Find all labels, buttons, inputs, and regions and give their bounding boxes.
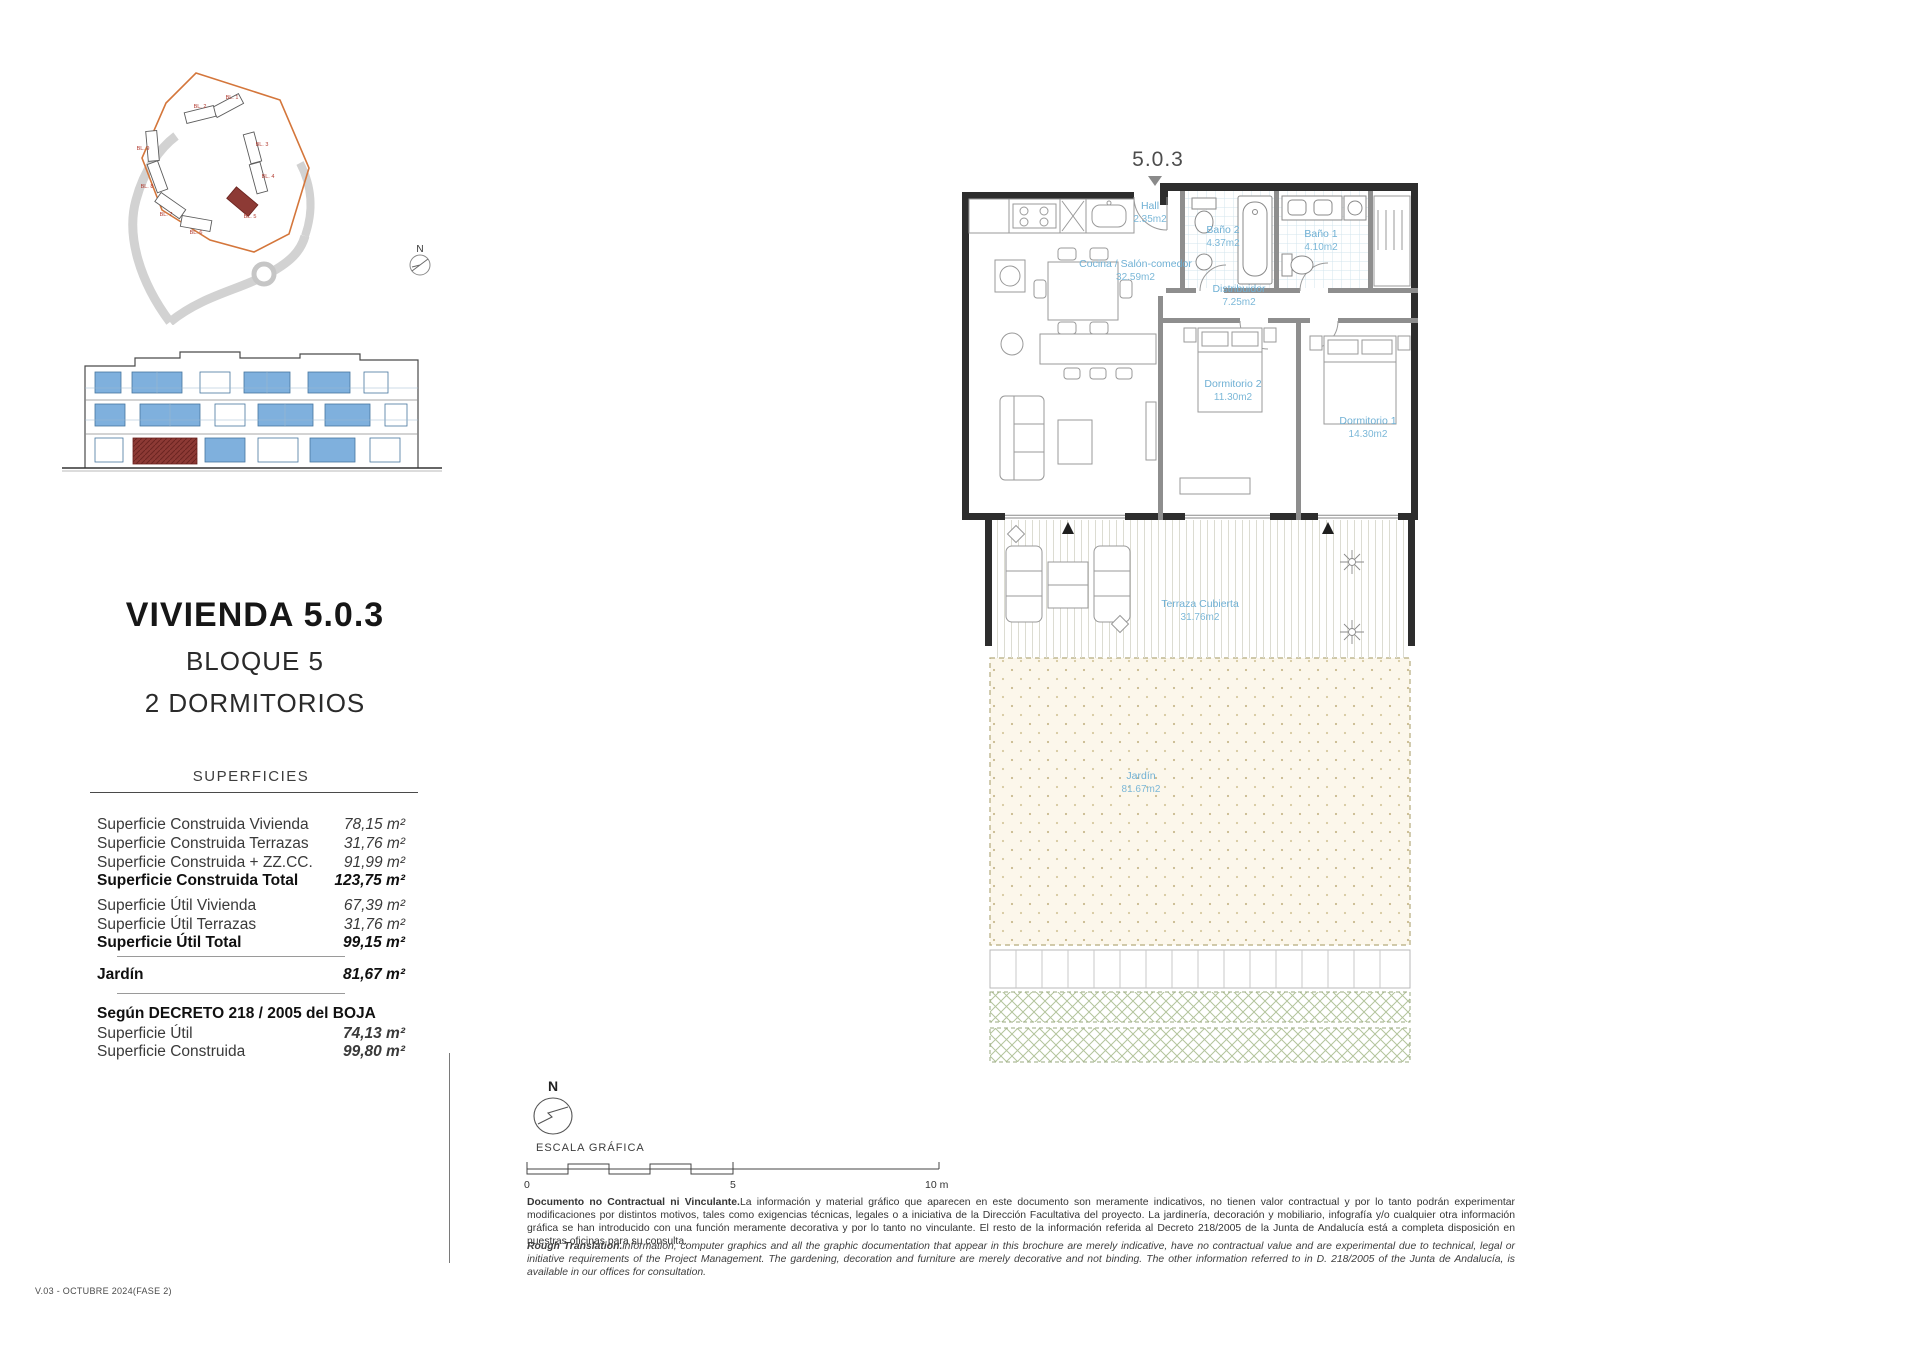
site-roads <box>133 136 311 322</box>
svg-text:BL. 9: BL. 9 <box>137 146 150 152</box>
room-label-jardin: Jardín81.67m2 <box>1096 770 1186 796</box>
surfaces-underline <box>90 792 418 793</box>
highlighted-unit <box>133 438 197 464</box>
svg-text:BL. 2: BL. 2 <box>194 104 207 110</box>
table-row: Superficie Construida + ZZ.CC.91,99 m² <box>97 854 405 872</box>
table-row: Superficie Útil74,13 m² <box>97 1025 405 1043</box>
table-row: Superficie Útil Vivienda67,39 m² <box>97 897 405 915</box>
surfaces-heading: SUPERFICIES <box>90 768 412 785</box>
scale-and-compass: N 0 5 10 m <box>520 1075 960 1190</box>
pavers-band <box>990 950 1410 988</box>
brochure-page: BL. 1 BL. 2 BL. 3 BL. 4 BL. 5 BL. 6 BL. … <box>0 0 1920 1357</box>
sofa-icon <box>1000 396 1044 480</box>
building-elevation <box>55 340 450 480</box>
svg-text:10 m: 10 m <box>925 1179 949 1190</box>
stove-icon <box>1013 204 1056 228</box>
table-row: Superficie Útil Terrazas31,76 m² <box>97 916 405 934</box>
room-label-dormitorio2: Dormitorio 211.30m2 <box>1188 378 1278 404</box>
svg-text:BL. 1: BL. 1 <box>226 95 239 101</box>
coffee-table-icon <box>1058 420 1092 464</box>
room-label-distribuidor: Distribuidor7.25m2 <box>1196 283 1282 309</box>
site-plan: BL. 1 BL. 2 BL. 3 BL. 4 BL. 5 BL. 6 BL. … <box>100 55 440 325</box>
windows <box>1005 513 1398 520</box>
toilet-icon <box>1282 254 1313 276</box>
divider <box>117 993 345 994</box>
dresser-icon <box>1180 478 1250 494</box>
footer-divider <box>449 1053 450 1263</box>
svg-text:BL. 7: BL. 7 <box>160 212 173 218</box>
room-label-terraza: Terraza Cubierta31.76m2 <box>1140 598 1260 624</box>
svg-text:BL. 6: BL. 6 <box>190 230 203 236</box>
table-row-total: Superficie Construida Total123,75 m² <box>97 872 405 890</box>
terrace-area <box>985 520 1415 658</box>
version-label: V.03 - OCTUBRE 2024(FASE 2) <box>35 1286 172 1296</box>
escala-grafica-label: ESCALA GRÁFICA <box>536 1142 645 1154</box>
subtitle-block: BLOQUE 5 <box>70 646 440 677</box>
bedroom2-furniture <box>1180 328 1276 494</box>
armchair-icon <box>1001 333 1023 355</box>
svg-text:0: 0 <box>524 1179 530 1190</box>
svg-text:5: 5 <box>730 1179 736 1190</box>
room-label-dormitorio1: Dormitorio 114.30m2 <box>1325 415 1411 441</box>
table-row-total: Superficie Útil Total99,15 m² <box>97 934 405 952</box>
wardrobe-icon <box>1374 196 1410 286</box>
washbasin-icon <box>1314 200 1332 215</box>
plan-number-marker <box>1148 176 1162 186</box>
highlighted-block <box>227 187 258 216</box>
scale-tick-labels: 0 5 10 m <box>524 1179 949 1190</box>
decreto-heading: Según DECRETO 218 / 2005 del BOJA <box>97 1005 405 1023</box>
scale-bar <box>527 1162 939 1174</box>
hedge-bands <box>990 992 1410 1062</box>
washing-machine-icon <box>1344 196 1366 220</box>
svg-text:BL. 3: BL. 3 <box>256 142 269 148</box>
room-label-cocina: Cocina / Salón-comedor32.59m2 <box>1058 258 1213 284</box>
svg-text:BL. 5: BL. 5 <box>244 214 257 220</box>
title-block: VIVIENDA 5.0.3 BLOQUE 5 2 DORMITORIOS <box>70 596 440 719</box>
washbasin-icon <box>1288 200 1306 215</box>
room-label-bano2: Baño 24.37m2 <box>1190 224 1256 250</box>
svg-text:BL. 4: BL. 4 <box>262 174 275 180</box>
table-row: Superficie Construida Terrazas31,76 m² <box>97 835 405 853</box>
table-row-jardin: Jardín81,67 m² <box>97 966 405 984</box>
subtitle-rooms: 2 DORMITORIOS <box>70 688 440 719</box>
page-title: VIVIENDA 5.0.3 <box>70 596 440 635</box>
svg-text:N: N <box>548 1078 558 1094</box>
divider <box>117 956 345 957</box>
svg-text:N: N <box>416 244 423 255</box>
room-label-hall: Hall2.35m2 <box>1118 200 1182 226</box>
room-label-bano1: Baño 14.10m2 <box>1288 228 1354 254</box>
table-row: Superficie Construida99,80 m² <box>97 1043 405 1061</box>
north-compass-small: N <box>410 244 430 275</box>
north-compass: N <box>534 1078 572 1134</box>
table-row: Superficie Construida Vivienda78,15 m² <box>97 816 405 834</box>
tv-unit-icon <box>1146 402 1156 460</box>
disclaimer-english: Rough Translation.information, computer … <box>527 1240 1515 1279</box>
garden-area <box>990 658 1410 945</box>
kitchen-island <box>1040 334 1156 364</box>
svg-text:BL. 8: BL. 8 <box>141 184 154 190</box>
